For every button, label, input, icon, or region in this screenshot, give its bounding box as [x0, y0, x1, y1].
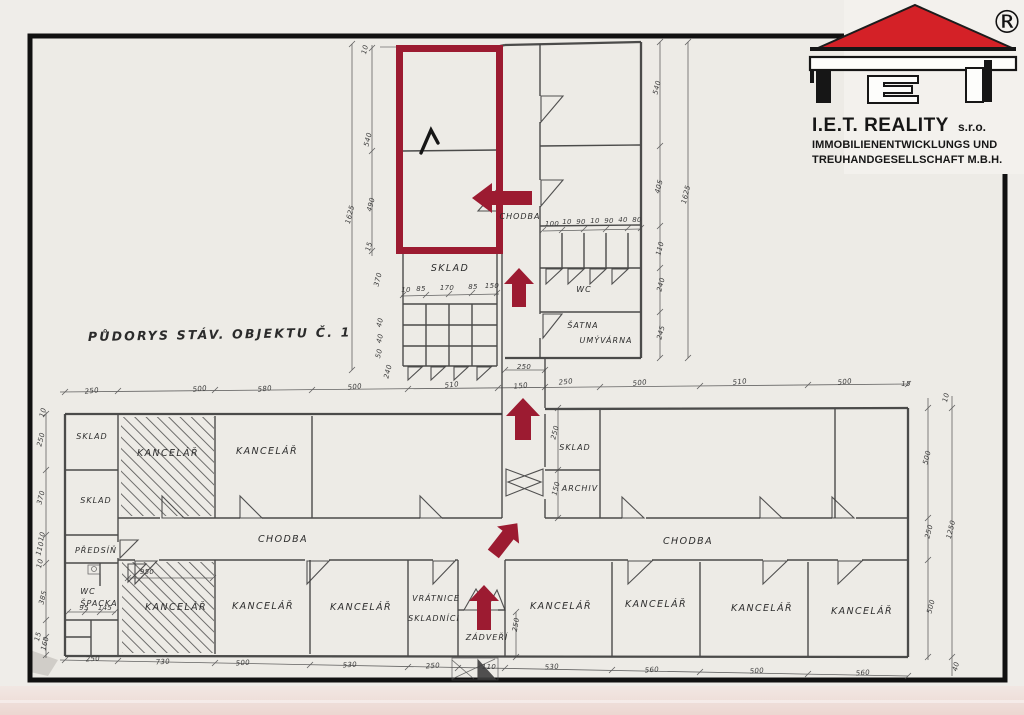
dim-label: 250 [558, 377, 573, 386]
dim-label: 530 [544, 663, 559, 672]
dim-label: 250 [84, 386, 99, 395]
dim-label: 10 [401, 286, 411, 294]
logo-line2-text: IMMOBILIENENTWICKLUNGS UND [812, 139, 997, 151]
scanned-floorplan-page: PŮDORYS STÁV. OBJEKTU Č. 1 CHODBA SKLAD … [0, 0, 1024, 715]
room-label: KANCELÁŘ [330, 601, 392, 613]
room-label: KANCELÁŘ [731, 602, 793, 614]
room-label: SKLAD [80, 496, 111, 505]
room-label: SKLAD [431, 263, 469, 274]
dim-label: 500 [235, 659, 250, 668]
room-label: VRÁTNICE [412, 592, 460, 603]
room-label: KANCELÁŘ [236, 445, 298, 457]
logo-letter-e [868, 76, 918, 103]
logo-line3-text: TREUHANDGESELLSCHAFT M.B.H. [812, 154, 1002, 166]
dim-label: 15 [901, 380, 911, 388]
floorplan-drawing: PŮDORYS STÁV. OBJEKTU Č. 1 CHODBA SKLAD … [0, 0, 1024, 715]
room-label: KANCELÁŘ [145, 601, 207, 613]
room-label: ŠATNA [567, 319, 598, 330]
room-label: KANCELÁŘ [530, 600, 592, 612]
room-label: CHODBA [258, 534, 308, 545]
dim-label: 95 [79, 604, 89, 612]
dim-label: 250 [85, 655, 100, 664]
logo-letter-i [816, 71, 831, 103]
dim-label: 40 [618, 216, 628, 224]
dim-label: 80 [632, 216, 642, 224]
room-label: KANCELÁŘ [831, 605, 893, 617]
dim-label: 150 [485, 282, 500, 290]
dim-label: 250 [425, 662, 440, 671]
room-label: UMÝVÁRNA [579, 334, 632, 345]
dim-label: 560 [855, 669, 870, 678]
dim-label: 510 [444, 380, 459, 389]
dim-label: 500 [192, 384, 207, 393]
room-label: KANCELÁŘ [625, 598, 687, 610]
logo-letter-t-shadow [984, 60, 992, 102]
room-label: CHODBA [663, 536, 713, 547]
dim-label: 560 [644, 666, 659, 675]
dim-label: 150 [513, 381, 528, 390]
logo-suffix-text: s.r.o. [958, 120, 986, 134]
dim-label: 85 [416, 285, 426, 293]
dim-label: 10 [590, 217, 600, 225]
dim-label: 90 [604, 217, 614, 225]
logo-brand-text: I.E.T. REALITY [812, 115, 949, 136]
dim-label: 580 [257, 384, 272, 393]
room-label: ZÁDVEŘÍ [465, 631, 509, 642]
room-label: SKLAD [559, 443, 590, 452]
room-label: WC [576, 285, 592, 294]
dim-label: 500 [837, 377, 852, 386]
dim-label: 510 [732, 377, 747, 386]
room-label: SKLAD [76, 432, 107, 441]
room-label: ARCHIV [561, 484, 598, 493]
logo-letter-t [966, 68, 983, 102]
room-label: PŘEDSÍŇ [75, 544, 117, 555]
dim-label: 85 [468, 283, 478, 291]
dim-label: 100 [545, 220, 560, 228]
logo-letter-tick [810, 71, 814, 83]
dim-label: 530 [342, 661, 357, 670]
dim-label: 170 [440, 284, 455, 292]
dim-label: 90 [576, 218, 586, 226]
room-label: KANCELÁŘ [232, 600, 294, 612]
room-label: SKLADNÍCI [408, 612, 460, 623]
dim-label: 145 [98, 604, 113, 612]
dim-label: 500 [749, 667, 764, 676]
dim-label: 500 [347, 382, 362, 391]
registered-mark: ® [991, 3, 1023, 41]
room-label: CHODBA [499, 212, 540, 221]
dim-label: 250 [517, 363, 532, 371]
dim-label: 10 [562, 218, 572, 226]
dim-label: 500 [632, 378, 647, 387]
dim-label: 730 [155, 658, 170, 667]
room-label: WC [80, 587, 96, 596]
room-label: KANCELÁŘ [137, 447, 199, 459]
dim-label: 950 [140, 568, 155, 576]
dim-label: 110 [482, 663, 497, 671]
